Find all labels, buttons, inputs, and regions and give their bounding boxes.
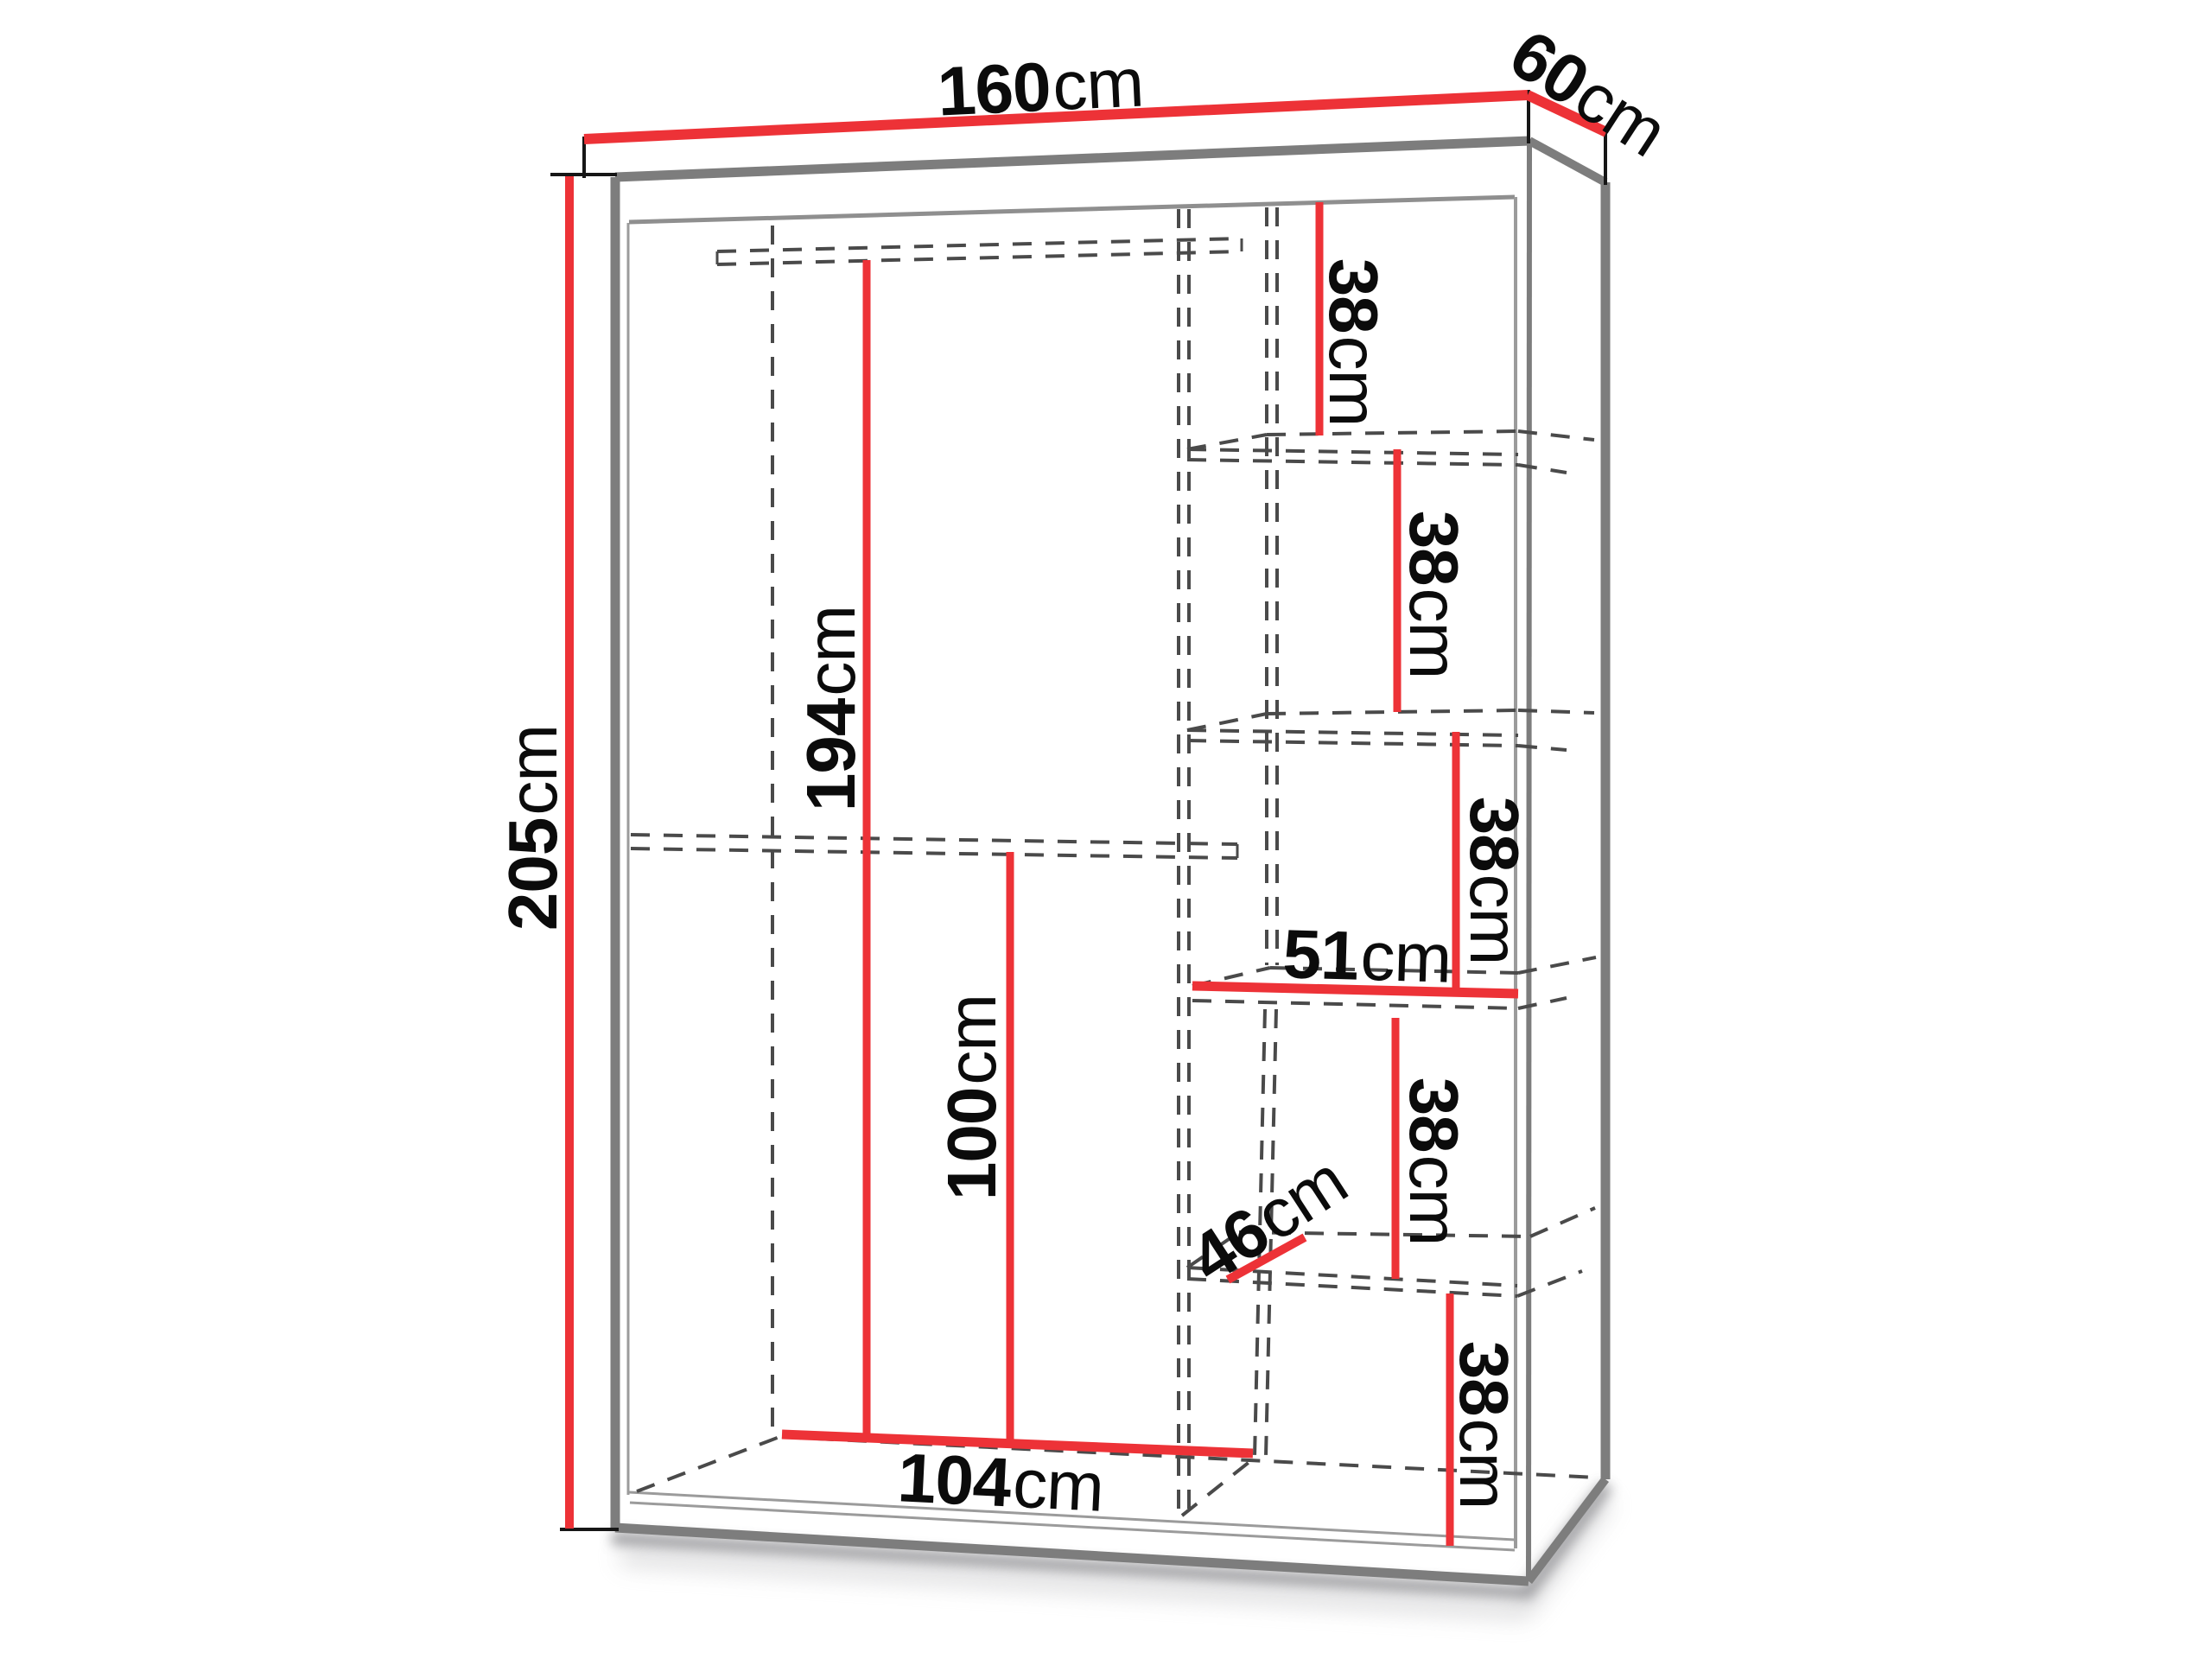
dim-shelf-width-unit: cm (1359, 918, 1452, 997)
dim-interior-width-value: 104 (896, 1439, 1013, 1521)
dim-lower-height-value: 100 (933, 1088, 1010, 1200)
dim-gap2-unit: cm (1395, 588, 1472, 679)
dim-shelf-width-label: 51cm (1282, 919, 1452, 993)
inner-ceiling-edge (629, 197, 1515, 222)
divider-panel (1179, 207, 1277, 1517)
dim-gap1-value: 38 (1315, 258, 1392, 334)
dim-gap4-unit: cm (1395, 1155, 1472, 1246)
dimension-lines (569, 95, 1606, 1546)
shelf-2 (1187, 710, 1594, 750)
dim-width-value: 160 (936, 48, 1052, 130)
top-edge (615, 141, 1529, 177)
floor-receding-edge (637, 1437, 779, 1491)
dim-gap2-value: 38 (1395, 511, 1472, 586)
mid-level-lines (631, 835, 1237, 858)
dim-interior-width-unit: cm (1011, 1445, 1105, 1526)
shelf-1 (1187, 431, 1594, 473)
dim-gap5-value: 38 (1446, 1341, 1522, 1416)
dim-gap4-value: 38 (1395, 1077, 1472, 1153)
dim-lower-height-label: 100cm (938, 995, 1007, 1200)
dim-gap1-unit: cm (1315, 336, 1392, 427)
dim-gap3-label: 38cm (1459, 797, 1529, 965)
dim-height-label: 205cm (499, 725, 568, 931)
dim-hanging-height-value: 194 (792, 699, 869, 811)
dim-gap3-value: 38 (1456, 797, 1533, 872)
dim-height-value: 205 (494, 818, 571, 931)
diagram-canvas (0, 0, 2212, 1659)
dim-height-unit: cm (494, 725, 571, 816)
dim-width-unit: cm (1051, 43, 1145, 124)
dim-gap4-label: 38cm (1399, 1077, 1468, 1246)
dim-width-label: 160cm (936, 48, 1145, 126)
dim-interior-width-label: 104cm (896, 1443, 1105, 1522)
clothes-rail (717, 238, 1242, 264)
side-top-edge (1529, 141, 1605, 182)
dim-gap1-label: 38cm (1319, 258, 1388, 427)
wardrobe-dimension-diagram: 160cm 60cm 205cm 194cm 100cm 104cm 51cm … (0, 0, 2212, 1659)
dim-gap3-unit: cm (1456, 874, 1533, 965)
dim-shelf-width-value: 51 (1281, 915, 1358, 994)
dim-gap5-label: 38cm (1449, 1341, 1518, 1510)
dim-gap2-label: 38cm (1399, 511, 1468, 679)
dim-lower-height-unit: cm (933, 995, 1010, 1085)
dim-gap5-unit: cm (1446, 1419, 1522, 1510)
dim-hanging-height-label: 194cm (797, 606, 866, 811)
dim-hanging-height-unit: cm (792, 606, 869, 696)
